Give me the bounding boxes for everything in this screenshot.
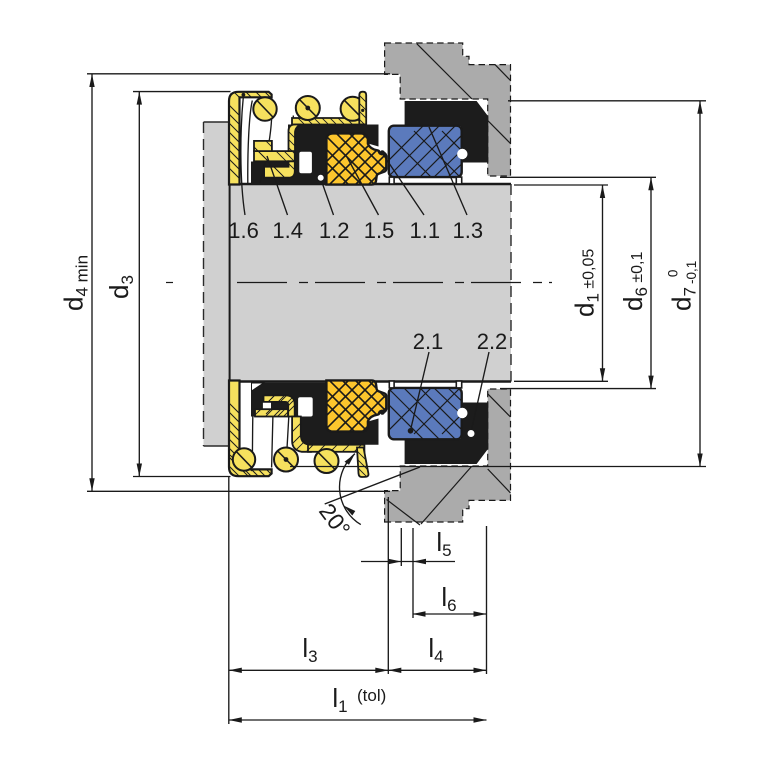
svg-text:2.2: 2.2 <box>477 329 508 354</box>
svg-text:1.5: 1.5 <box>364 218 395 243</box>
svg-text:1.4: 1.4 <box>272 218 303 243</box>
svg-text:1.1: 1.1 <box>410 218 441 243</box>
svg-text:1.3: 1.3 <box>453 218 484 243</box>
svg-text:1.2: 1.2 <box>319 218 350 243</box>
svg-text:(tol): (tol) <box>357 686 386 705</box>
svg-text:1.6: 1.6 <box>228 218 259 243</box>
svg-text:2.1: 2.1 <box>413 329 444 354</box>
